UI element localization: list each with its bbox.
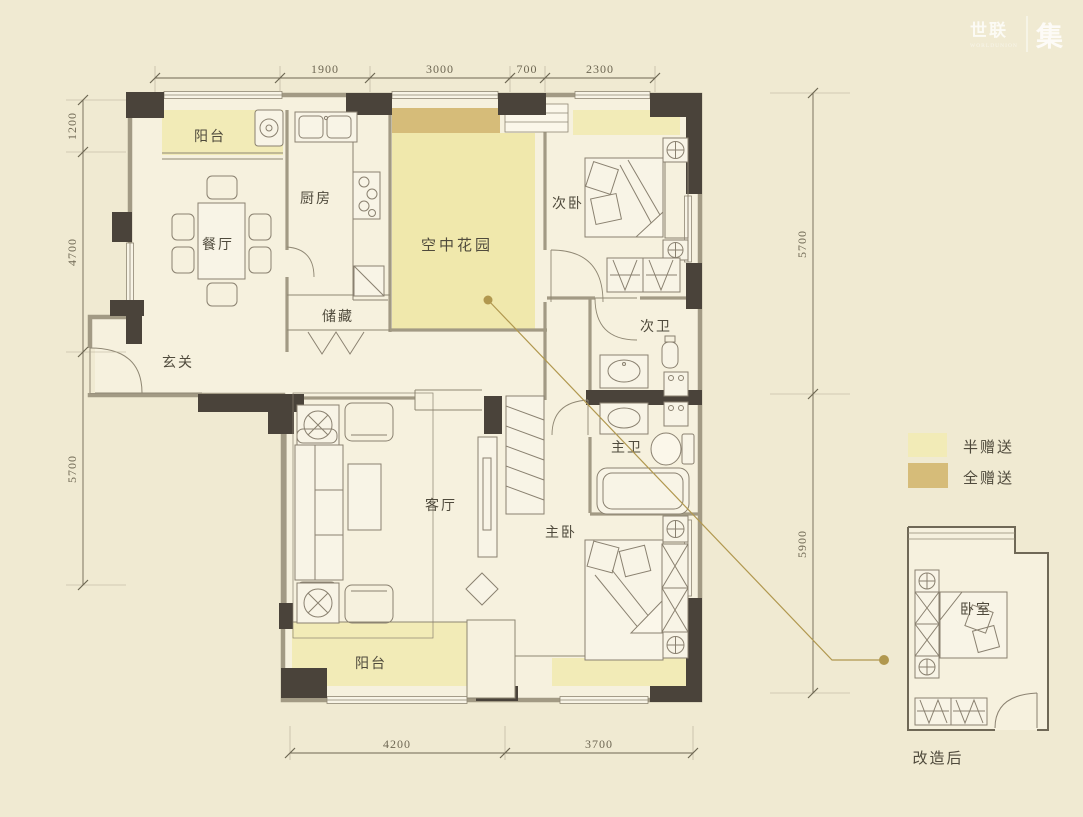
watermark-sub: WORLDUNION (970, 43, 1018, 49)
dim-right-5900: 5900 (795, 530, 809, 558)
label-bedroom2: 次卧 (552, 196, 584, 212)
window-garden-top (392, 92, 498, 99)
dim-right (808, 88, 818, 698)
legend-swatch-full (908, 463, 948, 488)
inset-room-label: 卧室 (960, 601, 992, 618)
coffee-table (348, 464, 381, 530)
dim-top-3000: 3000 (426, 62, 454, 76)
label-dining: 餐厅 (202, 237, 234, 253)
inset-nightstand-bottom (915, 656, 939, 678)
nightstand-bedroom2-bottom (663, 240, 688, 260)
label-foyer: 玄关 (162, 354, 194, 371)
dim-left-5700: 5700 (65, 455, 79, 483)
dim-bottom-3700: 3700 (585, 737, 613, 751)
nightstand-master-top (663, 516, 688, 542)
nightstand-bedroom2-top (663, 138, 688, 162)
window-dining-west (127, 243, 134, 301)
washing-machine-icon (255, 110, 283, 146)
furniture-bed-bedroom2 (585, 158, 663, 237)
stove-icon (353, 172, 380, 219)
dim-top-2300: 2300 (586, 62, 614, 76)
inset-caption: 改造后 (912, 750, 963, 767)
inset-plan: 卧室 改造后 (908, 527, 1048, 767)
legend-swatch-half (908, 433, 947, 457)
legend: 半赠送 全赠送 (908, 433, 1014, 488)
watermark-suffix: 集 (1035, 21, 1064, 52)
legend-label-half: 半赠送 (963, 439, 1014, 456)
floorplan-svg: 阳台 餐厅 厨房 储藏 玄关 空中花园 次卧 次卫 主卫 客厅 主卧 阳台 (0, 0, 1083, 812)
full-gift-garden-strip (392, 108, 500, 133)
label-kitchen: 厨房 (300, 191, 332, 207)
label-balcony-top: 阳台 (194, 129, 226, 145)
sofa (295, 429, 343, 596)
window-bedroom2-top (575, 92, 650, 99)
watermark-brand: 世联 (970, 21, 1008, 40)
window-balcony-bottom (327, 697, 467, 704)
half-gift-sky-garden (392, 133, 535, 330)
inset-side-column (915, 592, 939, 656)
half-gift-master-strip (552, 658, 686, 686)
corner-table-top (297, 405, 339, 445)
dim-top-700: 700 (517, 62, 538, 76)
label-living: 客厅 (425, 497, 457, 514)
corner-table-bottom (297, 583, 339, 623)
bed-master (585, 540, 663, 660)
window-balcony-top (164, 92, 282, 99)
inset-wardrobe (915, 698, 987, 725)
bathtub-icon (597, 468, 689, 514)
dim-left-4700: 4700 (65, 238, 79, 266)
label-balcony-bottom: 阳台 (355, 656, 387, 672)
inset-bed (940, 592, 1007, 658)
wardrobe-master-right (662, 544, 688, 632)
balcony-pillar (467, 620, 515, 698)
dim-top (150, 73, 660, 83)
dim-top-1900: 1900 (311, 62, 339, 76)
label-bath2: 次卫 (640, 319, 672, 335)
watermark-logo: 世联 WORLDUNION 集 (970, 16, 1064, 52)
inset-nightstand-top (915, 570, 939, 592)
dim-bottom-4200: 4200 (383, 737, 411, 751)
toilet-icon (651, 433, 694, 465)
dim-left (78, 95, 88, 590)
wardrobe-bedroom2 (607, 258, 680, 292)
dim-bottom (285, 748, 698, 758)
wardrobe-master-left (506, 396, 544, 514)
legend-label-full: 全赠送 (963, 469, 1014, 487)
label-sky-garden: 空中花园 (421, 237, 493, 254)
dim-left-1200: 1200 (65, 112, 79, 140)
label-bath-master: 主卫 (611, 440, 643, 456)
window-master-south (560, 697, 648, 704)
floorplan-page: 阳台 餐厅 厨房 储藏 玄关 空中花园 次卧 次卫 主卫 客厅 主卧 阳台 (0, 0, 1083, 812)
dim-right-5700: 5700 (795, 230, 809, 258)
label-bedroom-master: 主卧 (545, 525, 577, 541)
label-storage: 储藏 (322, 309, 354, 325)
nightstand-master-bottom (663, 632, 688, 658)
tv-cabinet (478, 437, 497, 557)
